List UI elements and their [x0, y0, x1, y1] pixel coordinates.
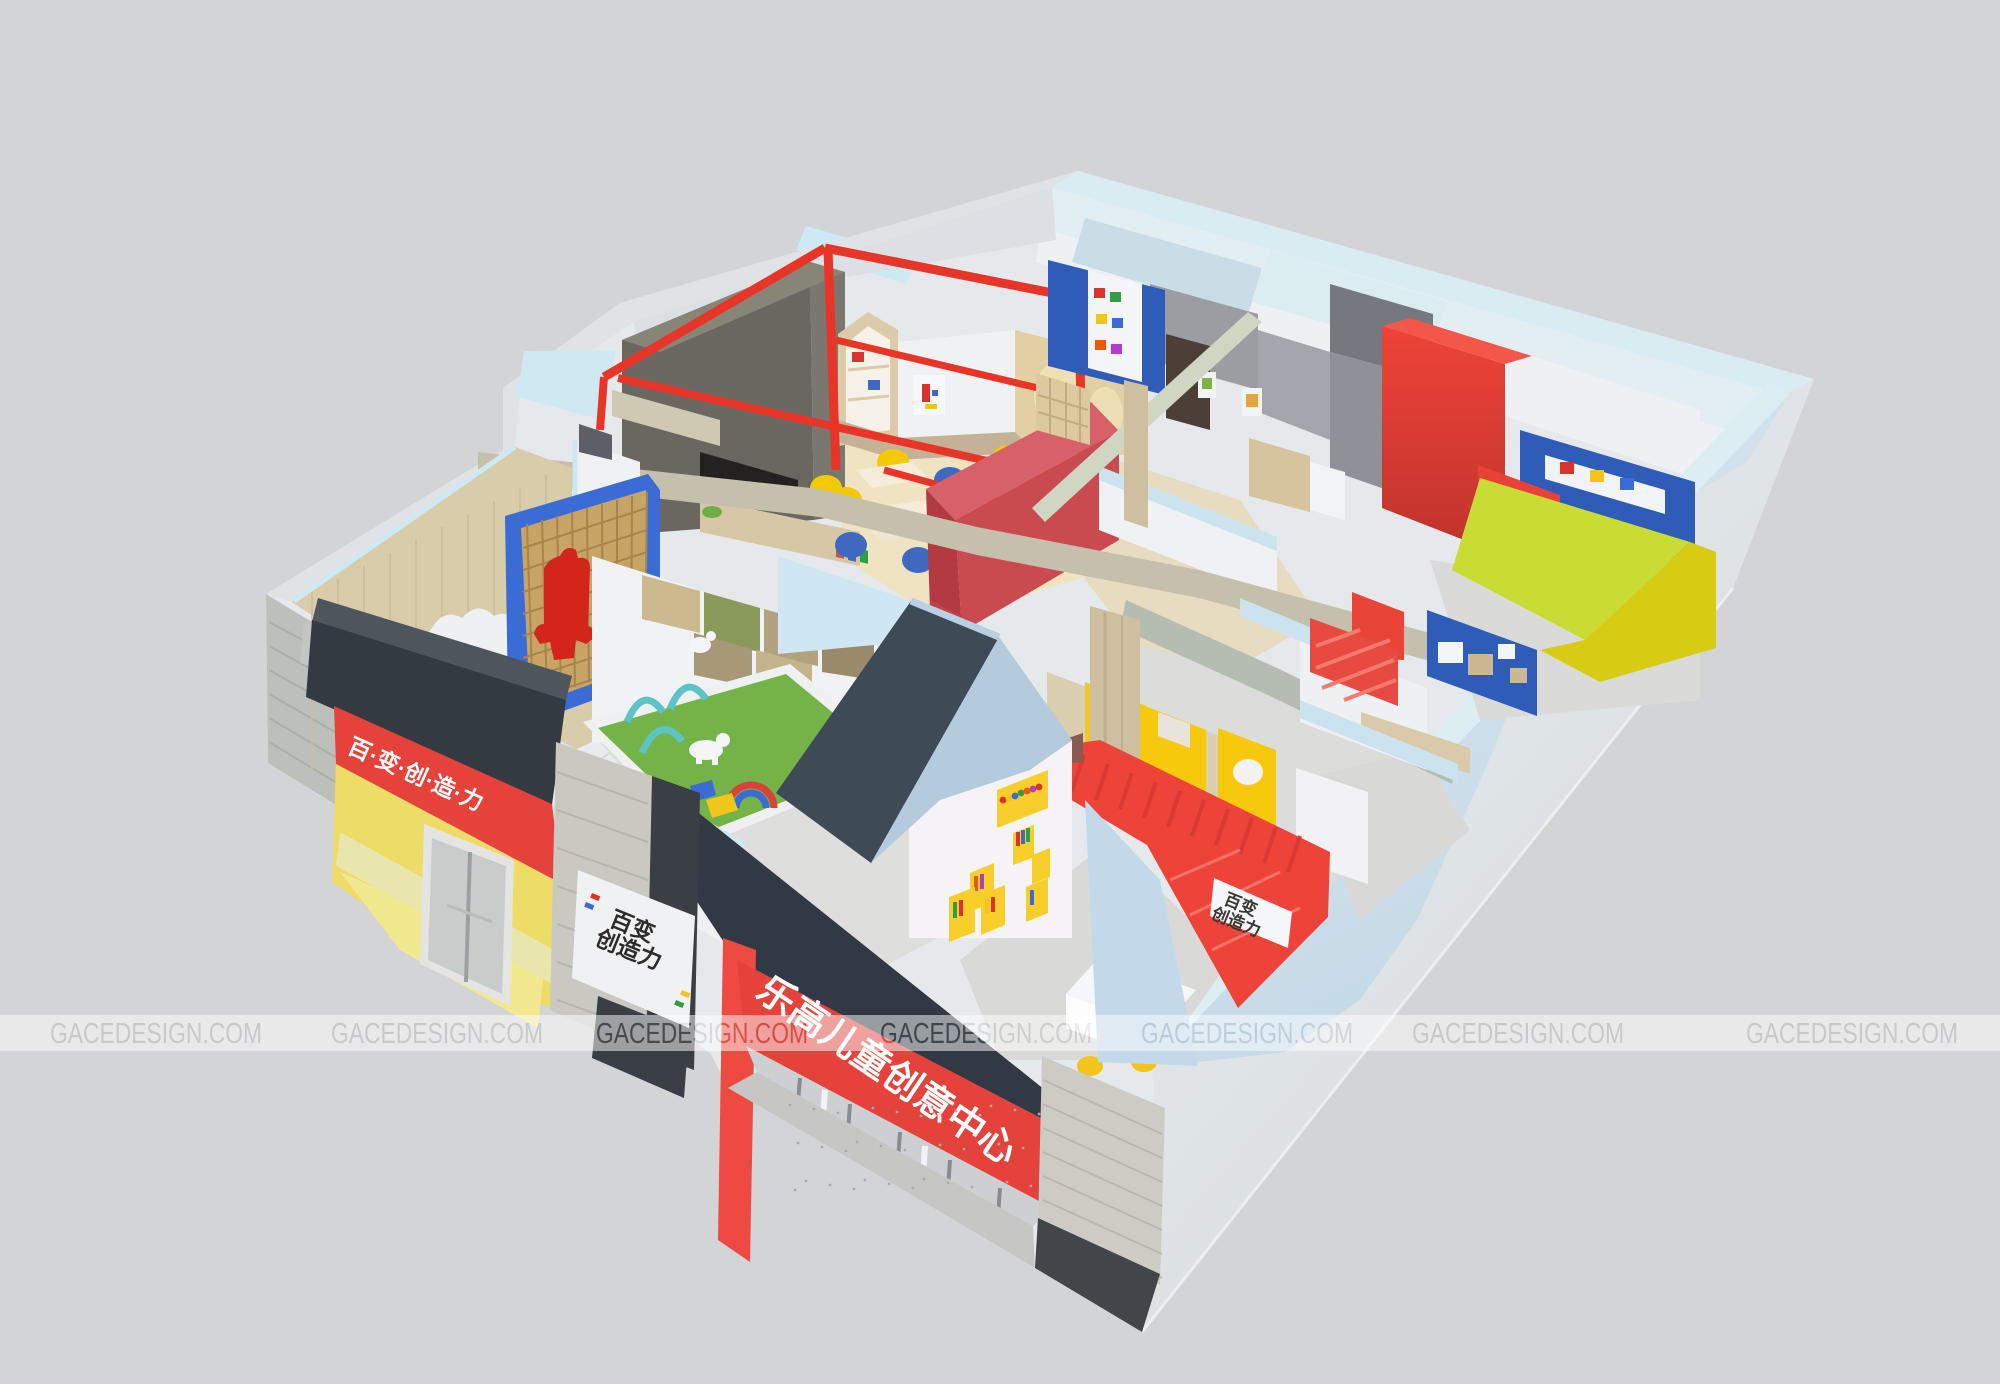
svg-text:GACEDESIGN.COM: GACEDESIGN.COM	[880, 1018, 1092, 1050]
svg-text:GACEDESIGN.COM: GACEDESIGN.COM	[596, 1018, 808, 1050]
svg-text:GACEDESIGN.COM: GACEDESIGN.COM	[1746, 1018, 1958, 1050]
svg-text:GACEDESIGN.COM: GACEDESIGN.COM	[50, 1018, 262, 1050]
svg-text:GACEDESIGN.COM: GACEDESIGN.COM	[1412, 1018, 1624, 1050]
svg-text:GACEDESIGN.COM: GACEDESIGN.COM	[1141, 1018, 1353, 1050]
svg-text:GACEDESIGN.COM: GACEDESIGN.COM	[331, 1018, 543, 1050]
